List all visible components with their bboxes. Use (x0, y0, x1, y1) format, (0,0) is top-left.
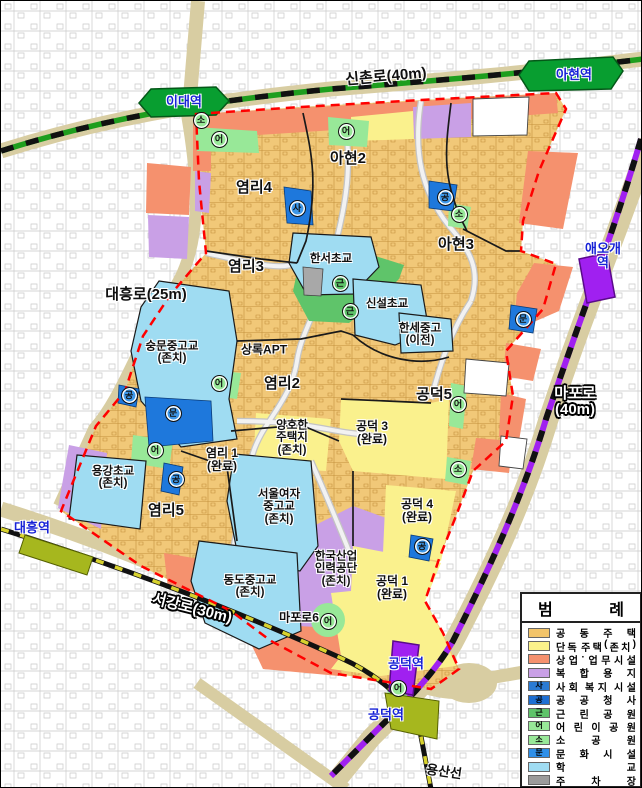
legend-swatch-4: 사 (528, 681, 550, 691)
legend-row-7: 어어린이공원 (528, 720, 636, 733)
legend-row-0: 공동주택 (528, 626, 636, 639)
legend-swatch-1 (528, 641, 550, 651)
legend-row-6: 근근린공원 (528, 706, 636, 719)
parking-zone (303, 267, 323, 296)
legend: 범 례 공동주택단독 주택(존치)상업·업무시설복합용지사사회 복지 시설공공공… (520, 592, 642, 788)
legend-items: 공동주택단독 주택(존치)상업·업무시설복합용지사사회 복지 시설공공공청사근근… (522, 623, 640, 787)
legend-row-11: 주차장 (528, 773, 636, 786)
legend-row-2: 상업·업무시설 (528, 653, 636, 666)
legend-swatch-5: 공 (528, 695, 550, 705)
legend-row-10: 학교 (528, 760, 636, 773)
legend-swatch-9: 문 (528, 748, 550, 758)
legend-row-9: 문문화시설 (528, 747, 636, 760)
legend-row-5: 공공공청사 (528, 693, 636, 706)
legend-swatch-7: 어 (528, 721, 550, 731)
legend-row-3: 복합용지 (528, 666, 636, 679)
legend-row-8: 소소공원 (528, 733, 636, 746)
legend-swatch-11 (528, 775, 550, 785)
legend-swatch-10 (528, 762, 550, 772)
legend-swatch-2 (528, 654, 550, 664)
legend-title: 범 례 (522, 594, 640, 623)
ahyeon-station-shape (519, 57, 623, 91)
legend-row-1: 단독 주택(존치) (528, 639, 636, 652)
legend-swatch-8: 소 (528, 735, 550, 745)
legend-swatch-3 (528, 668, 550, 678)
legend-title-left: 범 (538, 596, 553, 620)
legend-swatch-6: 근 (528, 708, 550, 718)
legend-title-right: 례 (609, 596, 624, 620)
zoning-map: 염리4아현2아현3염리3염리2염리5공덕5염리 1 (완료)공덕 3 (완료)공… (0, 0, 642, 788)
legend-label-11: 주차장 (556, 773, 636, 788)
legend-swatch-0 (528, 628, 550, 638)
legend-row-4: 사사회 복지 시설 (528, 680, 636, 693)
